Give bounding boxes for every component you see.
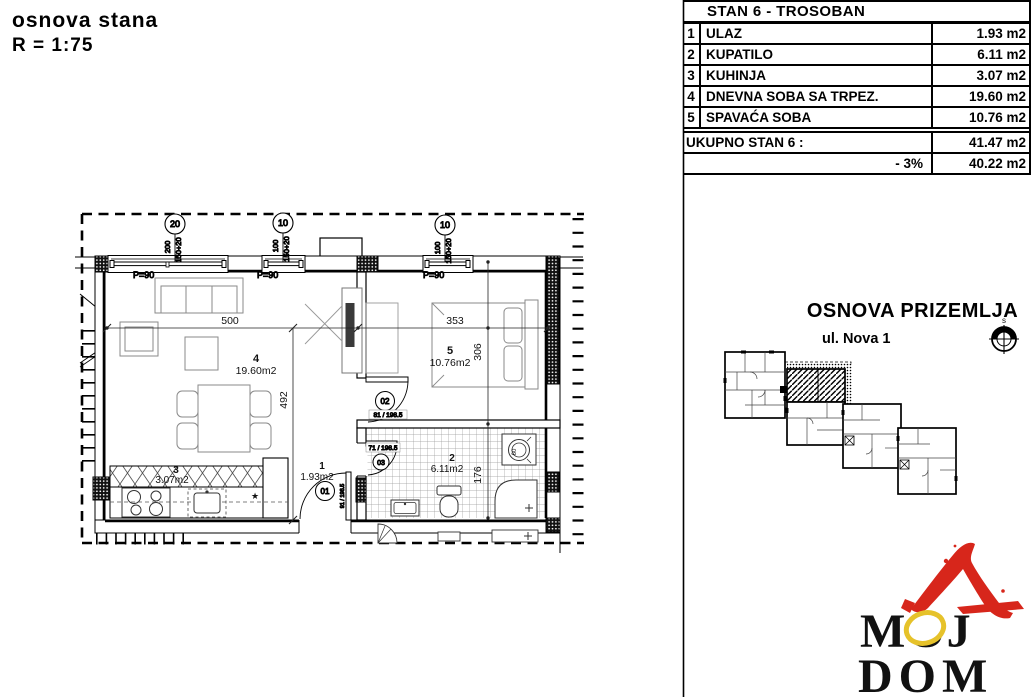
- logo: MOJ DOM: [858, 543, 1024, 697]
- window-2-width: 100: [271, 240, 280, 253]
- row-num: 5: [683, 108, 701, 127]
- site-block-4: [897, 428, 958, 494]
- area-table: STAN 6 - TROSOBAN 1 ULAZ 1.93 m2 2 KUPAT…: [683, 0, 1031, 175]
- room-5-num: 5: [447, 345, 453, 357]
- window-3-parapet: P=90: [423, 270, 444, 280]
- window-2-height: 150+20: [282, 236, 291, 261]
- window-2-parapet: P=90: [257, 270, 278, 280]
- bathroom-sink: [391, 500, 419, 516]
- total-value: 41.47 m2: [931, 133, 1029, 152]
- door-01-size: 91 / 198.5: [340, 484, 346, 508]
- site-plan: [724, 351, 958, 495]
- dim-492: 492: [278, 391, 290, 409]
- room-2-num: 2: [449, 453, 455, 464]
- row-name: DNEVNA SOBA SA TRPEZ.: [701, 87, 931, 106]
- table-row: 5 SPAVAĆA SOBA 10.76 m2: [683, 108, 1029, 129]
- site-block-2: [786, 402, 847, 445]
- room-1-num: 1: [319, 461, 325, 472]
- dim-176: 176: [472, 466, 484, 484]
- door-03-size: 71 / 198.5: [369, 445, 398, 452]
- window-1-parapet: P=90: [133, 270, 154, 280]
- row-area: 19.60 m2: [931, 87, 1029, 106]
- site-block-3: [842, 404, 903, 468]
- row-num: 4: [683, 87, 701, 106]
- site-block-1: [724, 351, 787, 419]
- reduction-label: - 3%: [683, 154, 931, 173]
- shaft: [320, 238, 362, 257]
- window-2-mark: 10: [278, 218, 288, 228]
- row-area: 10.76 m2: [931, 108, 1029, 127]
- kitchen: ★: [110, 458, 288, 518]
- floor-plan: ★ 60: [75, 213, 584, 553]
- toilet: [437, 486, 461, 517]
- table-row: 3 KUHINJA 3.07 m2: [683, 66, 1029, 87]
- row-name: SPAVAĆA SOBA: [701, 108, 931, 127]
- site-plan-title: OSNOVA PRIZEMLJA: [790, 300, 1032, 323]
- table-row: 2 KUPATILO 6.11 m2: [683, 45, 1029, 66]
- page: ★ 60: [0, 0, 1032, 697]
- washer-width-label: 60: [512, 448, 518, 455]
- washing-machine: 60: [502, 434, 536, 465]
- row-name: ULAZ: [701, 24, 931, 43]
- drawing-scale: R = 1:75: [12, 34, 158, 58]
- site-highlighted-unit: [780, 362, 852, 408]
- window-1-mark: 20: [170, 219, 180, 229]
- row-area: 1.93 m2: [931, 24, 1029, 43]
- dim-306: 306: [472, 343, 484, 361]
- shower: [495, 480, 537, 518]
- logo-text-bottom: DOM: [858, 650, 993, 697]
- tv-unit: [305, 288, 398, 373]
- door-02: 02 81 / 198.5: [366, 377, 408, 422]
- room-1-area: 1.93m2: [300, 472, 334, 483]
- row-name: KUHINJA: [701, 66, 931, 85]
- row-area: 3.07 m2: [931, 66, 1029, 85]
- row-num: 2: [683, 45, 701, 64]
- table-reduction-row: - 3% 40.22 m2: [683, 154, 1029, 175]
- row-name: KUPATILO: [701, 45, 931, 64]
- door-02-mark: 02: [381, 397, 390, 406]
- drawing-title: osnova stana: [12, 8, 158, 34]
- row-num: 3: [683, 66, 701, 85]
- window-1: [108, 256, 228, 273]
- row-num: 1: [683, 24, 701, 43]
- door-01-mark: 01: [321, 487, 330, 496]
- room-5-area: 10.76m2: [430, 357, 471, 369]
- table-row: 1 ULAZ 1.93 m2: [683, 24, 1029, 45]
- kitchen-star-icon: ★: [251, 491, 259, 501]
- window-1-height: 150+20: [174, 237, 183, 262]
- room-4-area: 19.60m2: [236, 365, 277, 377]
- door-03-mark: 03: [377, 460, 385, 467]
- street-label: ul. Nova 1: [822, 331, 891, 347]
- dim-353: 353: [446, 315, 464, 327]
- window-3-height: 150+20: [444, 238, 453, 263]
- dim-500: 500: [221, 315, 239, 327]
- room-3-area: 3.07m2: [155, 475, 189, 486]
- row-area: 6.11 m2: [931, 45, 1029, 64]
- table-total-row: UKUPNO STAN 6 : 41.47 m2: [683, 133, 1029, 154]
- window-1-width: 200: [163, 241, 172, 254]
- table-row: 4 DNEVNA SOBA SA TRPEZ. 19.60 m2: [683, 87, 1029, 108]
- room-2-area: 6.11m2: [431, 464, 464, 475]
- area-table-title: STAN 6 - TROSOBAN: [683, 2, 1029, 24]
- window-3-width: 100: [433, 242, 442, 255]
- drawing-header: osnova stana R = 1:75: [12, 8, 158, 58]
- door-02-size: 81 / 198.5: [374, 412, 403, 419]
- reduction-value: 40.22 m2: [931, 154, 1029, 173]
- total-label: UKUPNO STAN 6 :: [683, 133, 931, 152]
- room-4-num: 4: [253, 353, 260, 365]
- window-3-mark: 10: [440, 220, 450, 230]
